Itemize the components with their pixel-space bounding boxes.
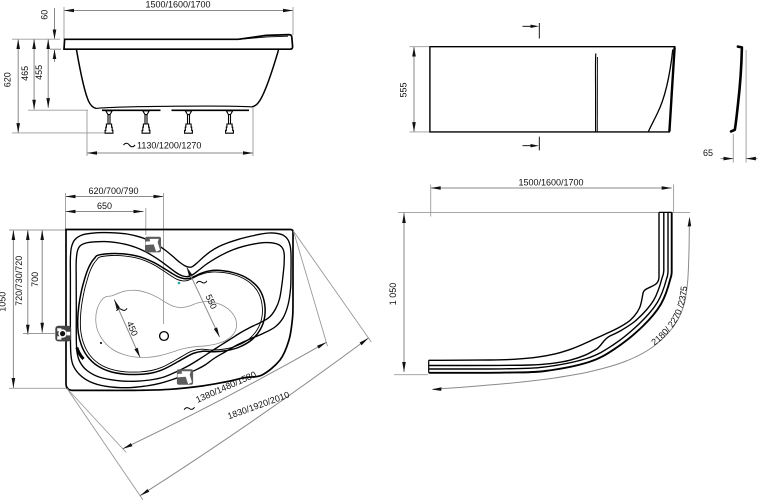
svg-text:620: 620 [3,72,13,87]
svg-text:65: 65 [703,148,713,158]
svg-text:555: 555 [399,82,409,97]
svg-text:1500/1600/1700: 1500/1600/1700 [145,0,210,9]
svg-text:455: 455 [34,65,44,80]
svg-text:465: 465 [20,66,30,81]
svg-text:1 050: 1 050 [388,283,398,306]
svg-text:1050: 1050 [0,292,8,312]
svg-text:620/700/790: 620/700/790 [88,186,138,196]
svg-text:1130/1200/1270: 1130/1200/1270 [137,141,201,151]
svg-text:700: 700 [30,272,40,287]
svg-text:720/730/720: 720/730/720 [14,256,24,306]
svg-text:1500/1600/1700: 1500/1600/1700 [518,178,583,188]
svg-text:60: 60 [40,10,50,20]
svg-text:650: 650 [97,201,112,211]
